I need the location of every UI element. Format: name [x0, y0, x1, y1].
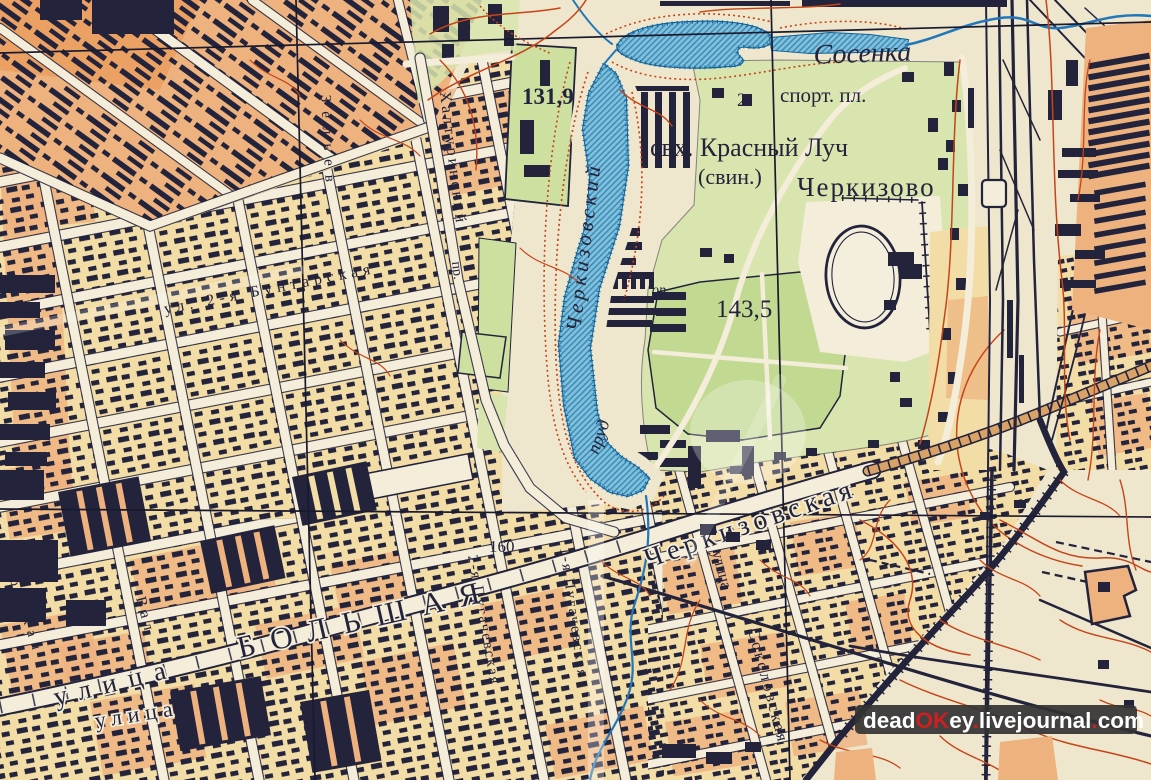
svg-text:2: 2 — [737, 90, 747, 111]
svg-text:пр.: пр. — [448, 261, 465, 281]
svg-text:(свин.): (свин.) — [698, 164, 762, 189]
svg-text:ая пл.: ая пл. — [2, 362, 39, 378]
svg-text:Черкизово: Черкизово — [797, 172, 936, 202]
svg-text:deadOKey.livejournal.com: deadOKey.livejournal.com — [863, 708, 1144, 733]
svg-text:160: 160 — [489, 537, 515, 556]
svg-text:131,9: 131,9 — [522, 84, 574, 109]
svg-text:спорт. пл.: спорт. пл. — [780, 83, 866, 107]
svg-text:Сосенка: Сосенка — [813, 36, 912, 70]
svg-text:свх. Красный Луч: свх. Красный Луч — [650, 133, 848, 162]
svg-text:143,5: 143,5 — [716, 296, 772, 323]
svg-text:ор.: ор. — [652, 283, 670, 298]
